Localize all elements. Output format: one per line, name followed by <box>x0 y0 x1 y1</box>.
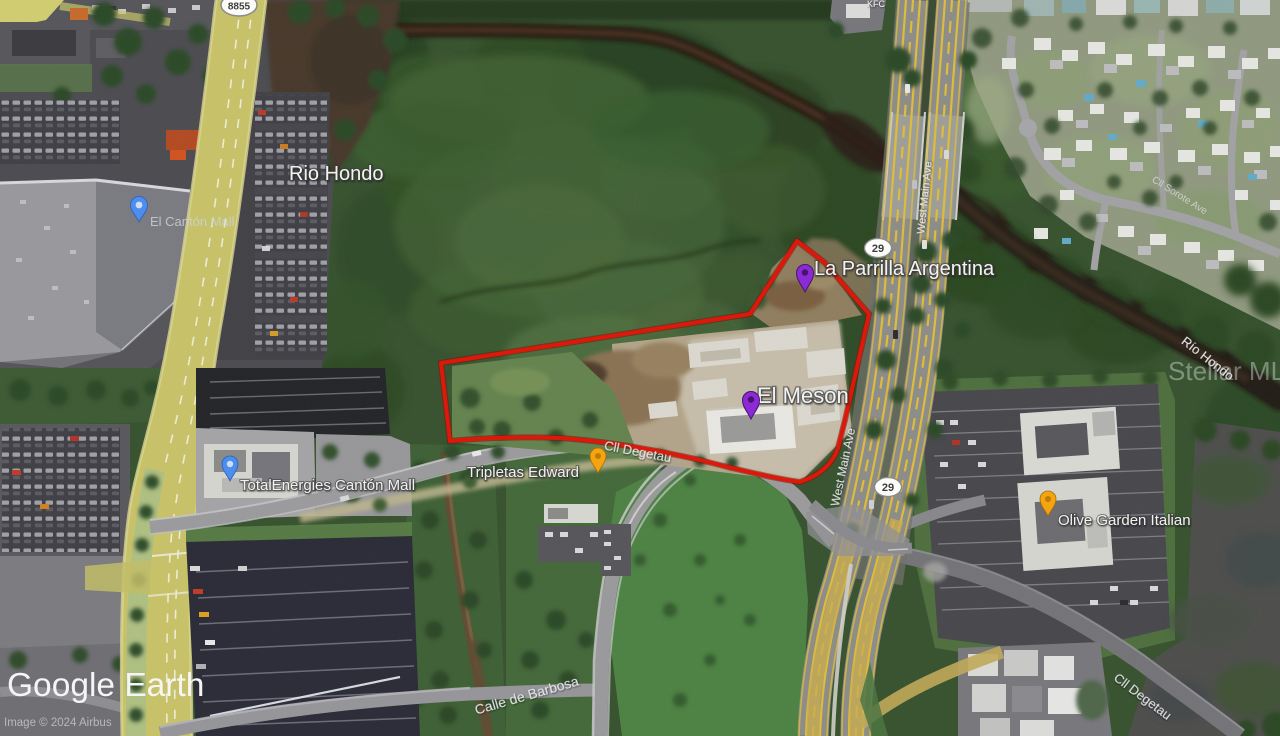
svg-text:Google Earth: Google Earth <box>7 667 204 704</box>
svg-text:Image © 2024 Airbus: Image © 2024 Airbus <box>4 717 112 729</box>
